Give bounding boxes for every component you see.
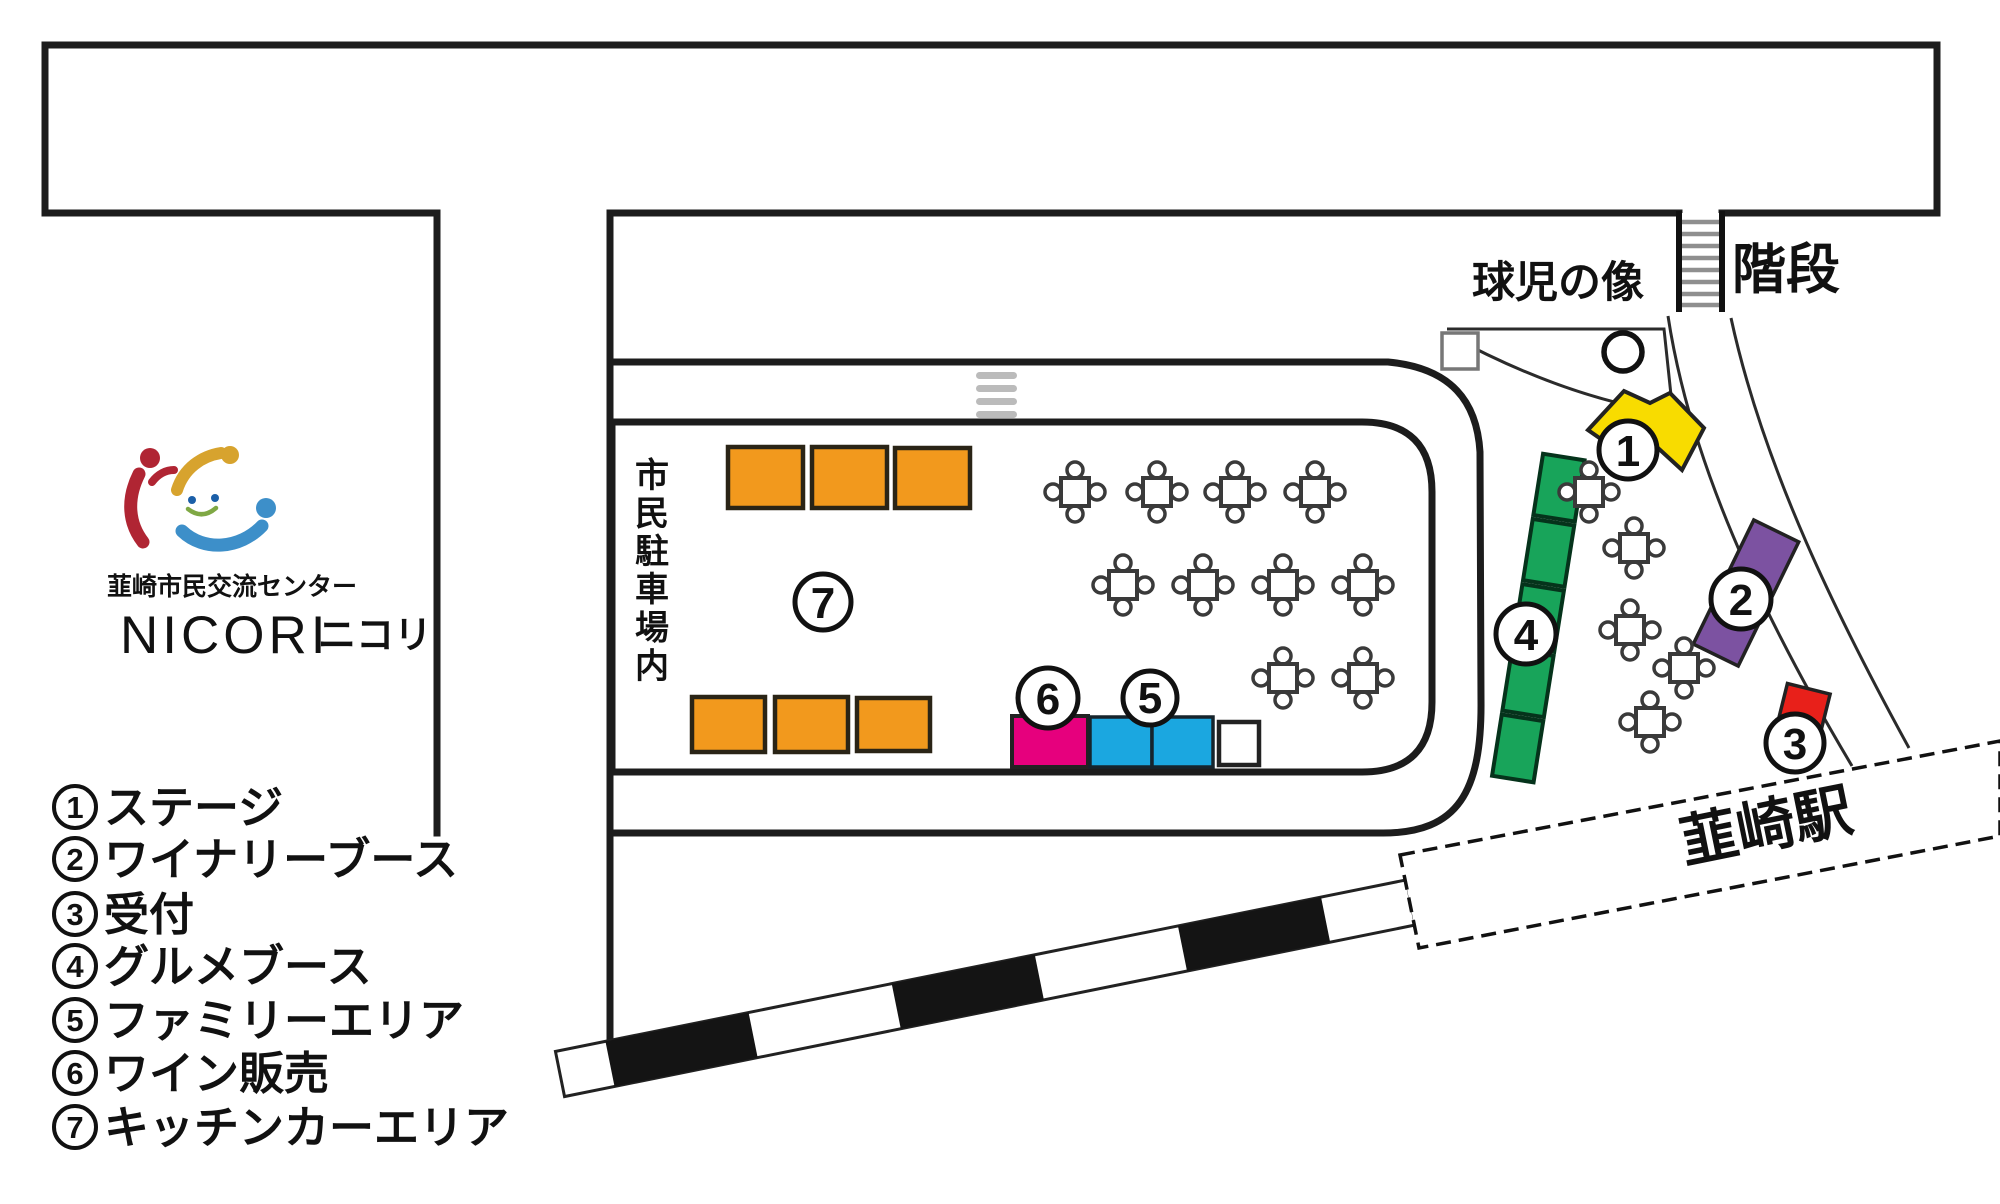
statue-square	[1442, 333, 1478, 369]
svg-text:4: 4	[66, 949, 84, 984]
legend: 1 ステージ 2 ワイナリーブース 3 受付 4 グルメブース 5 ファミリーエ…	[54, 782, 509, 1153]
map-marker-3: 3	[1766, 714, 1824, 772]
top-road-outline	[45, 45, 1937, 213]
svg-text:2: 2	[1729, 576, 1753, 625]
svg-text:1: 1	[1616, 427, 1640, 476]
svg-text:ワイン販売: ワイン販売	[104, 1048, 329, 1099]
statue-circle	[1604, 333, 1642, 371]
legend-item-6: 6 ワイン販売	[54, 1048, 329, 1099]
svg-text:1: 1	[66, 790, 83, 825]
legend-item-2: 2 ワイナリーブース	[54, 834, 458, 885]
svg-text:7: 7	[66, 1110, 83, 1145]
parking-label: 市民駐車場内	[635, 456, 669, 685]
map-marker-5: 5	[1123, 671, 1177, 725]
svg-text:ステージ: ステージ	[104, 782, 283, 833]
map-marker-6: 6	[1018, 668, 1078, 728]
tables-scattered	[1559, 462, 1714, 752]
svg-text:5: 5	[1138, 674, 1162, 723]
legend-item-7: 7 キッチンカーエリア	[54, 1102, 509, 1153]
nicori-logo: 韮崎市民交流センター NICORI ニコリ	[107, 446, 432, 665]
stairs-label: 階段	[1732, 240, 1840, 300]
svg-text:ワイナリーブース: ワイナリーブース	[104, 834, 458, 885]
statue-label: 球児の像	[1472, 259, 1644, 307]
svg-text:受付: 受付	[104, 889, 194, 940]
white-booth-square	[1219, 722, 1259, 765]
svg-text:6: 6	[1036, 675, 1060, 724]
station: 韮崎駅	[1400, 741, 2000, 948]
svg-text:ファミリーエリア: ファミリーエリア	[104, 995, 464, 1046]
event-map: 韮崎駅	[0, 0, 2000, 1204]
map-marker-1: 1	[1599, 421, 1657, 479]
svg-text:3: 3	[1783, 720, 1807, 769]
svg-text:グルメブース: グルメブース	[104, 941, 372, 992]
railroad-track	[555, 880, 1415, 1097]
svg-text:キッチンカーエリア: キッチンカーエリア	[104, 1102, 509, 1153]
map-marker-2: 2	[1711, 569, 1771, 629]
legend-item-1: 1 ステージ	[54, 782, 283, 833]
nicori-name-kana: ニコリ	[318, 615, 432, 657]
nicori-org-name: 韮崎市民交流センター	[107, 572, 357, 601]
kitchen-car-booths-row2	[692, 697, 930, 752]
legend-item-5: 5 ファミリーエリア	[54, 995, 464, 1046]
map-marker-4: 4	[1496, 604, 1556, 664]
svg-text:5: 5	[66, 1003, 83, 1038]
legend-item-3: 3 受付	[54, 889, 194, 940]
nicori-logo-mark	[131, 446, 276, 545]
svg-text:7: 7	[811, 579, 835, 628]
legend-item-4: 4 グルメブース	[54, 941, 372, 992]
map-marker-7: 7	[795, 574, 851, 630]
svg-text:6: 6	[66, 1056, 83, 1091]
kitchen-car-booths-row1	[728, 447, 970, 508]
road-marking-dashes	[976, 372, 1017, 418]
tables-grid	[1045, 462, 1393, 708]
svg-text:3: 3	[66, 897, 83, 932]
svg-text:4: 4	[1514, 611, 1539, 660]
nicori-name-en: NICORI	[120, 606, 330, 665]
svg-text:2: 2	[66, 842, 83, 877]
stairs-icon	[1679, 211, 1722, 312]
